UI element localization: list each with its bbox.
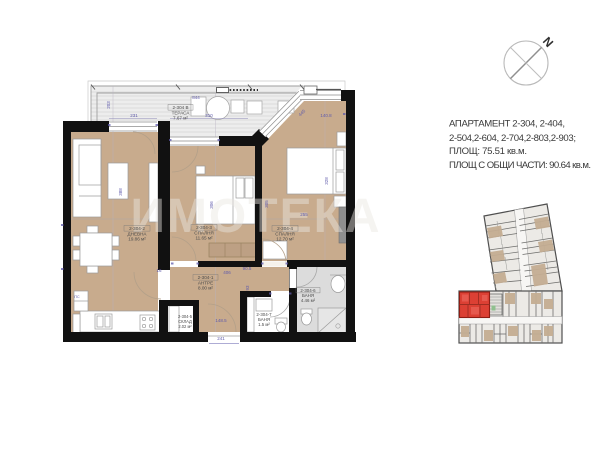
svg-text:90.5: 90.5: [243, 266, 252, 271]
svg-text:11.65 м²: 11.65 м²: [195, 236, 213, 241]
svg-text:2-504,2-604, 2-704,2-803,2-903: 2-504,2-604, 2-704,2-803,2-903;: [449, 133, 576, 144]
svg-text:2-304-4: 2-304-4: [277, 226, 293, 231]
svg-text:844: 844: [192, 95, 200, 100]
svg-text:2-304-2: 2-304-2: [129, 226, 145, 231]
svg-text:ИМОТЕКА: ИМОТЕКА: [130, 190, 381, 243]
svg-text:7.67 м²: 7.67 м²: [173, 116, 188, 121]
svg-text:2-304-1: 2-304-1: [198, 275, 214, 280]
svg-text:8.00 м²: 8.00 м²: [198, 286, 213, 291]
svg-text:ПЛОЩ: 75.51 кв.м.: ПЛОЩ: 75.51 кв.м.: [449, 146, 527, 157]
svg-text:16: 16: [156, 268, 162, 273]
svg-text:12.70 м²: 12.70 м²: [276, 237, 294, 242]
svg-text:388: 388: [118, 188, 123, 196]
svg-text:305: 305: [264, 200, 269, 208]
svg-text:203: 203: [106, 101, 111, 109]
svg-text:148.5: 148.5: [215, 318, 227, 323]
svg-text:241: 241: [217, 336, 225, 341]
svg-text:АПАРТАМЕНТ 2-304, 2-404,: АПАРТАМЕНТ 2-304, 2-404,: [449, 118, 565, 129]
svg-text:406: 406: [223, 270, 231, 275]
svg-text:2.02 м²: 2.02 м²: [178, 324, 192, 329]
svg-text:255: 255: [300, 212, 308, 217]
svg-text:2-304 В: 2-304 В: [172, 105, 188, 110]
svg-text:93: 93: [245, 285, 250, 291]
svg-text:140.8: 140.8: [320, 113, 332, 118]
svg-text:231: 231: [130, 113, 138, 118]
svg-text:4.46 м²: 4.46 м²: [301, 298, 316, 303]
svg-text:310: 310: [205, 113, 213, 118]
svg-text:ПС: ПС: [74, 295, 80, 299]
svg-text:306: 306: [209, 201, 214, 209]
svg-text:ПЛОЩ С ОБЩИ ЧАСТИ: 90.64 кв.м.: ПЛОЩ С ОБЩИ ЧАСТИ: 90.64 кв.м.: [449, 160, 591, 171]
svg-text:19.86 м²: 19.86 м²: [128, 237, 146, 242]
svg-text:328: 328: [324, 177, 329, 185]
svg-text:1.5 м²: 1.5 м²: [258, 322, 270, 327]
svg-text:2-304-3: 2-304-3: [196, 225, 212, 230]
